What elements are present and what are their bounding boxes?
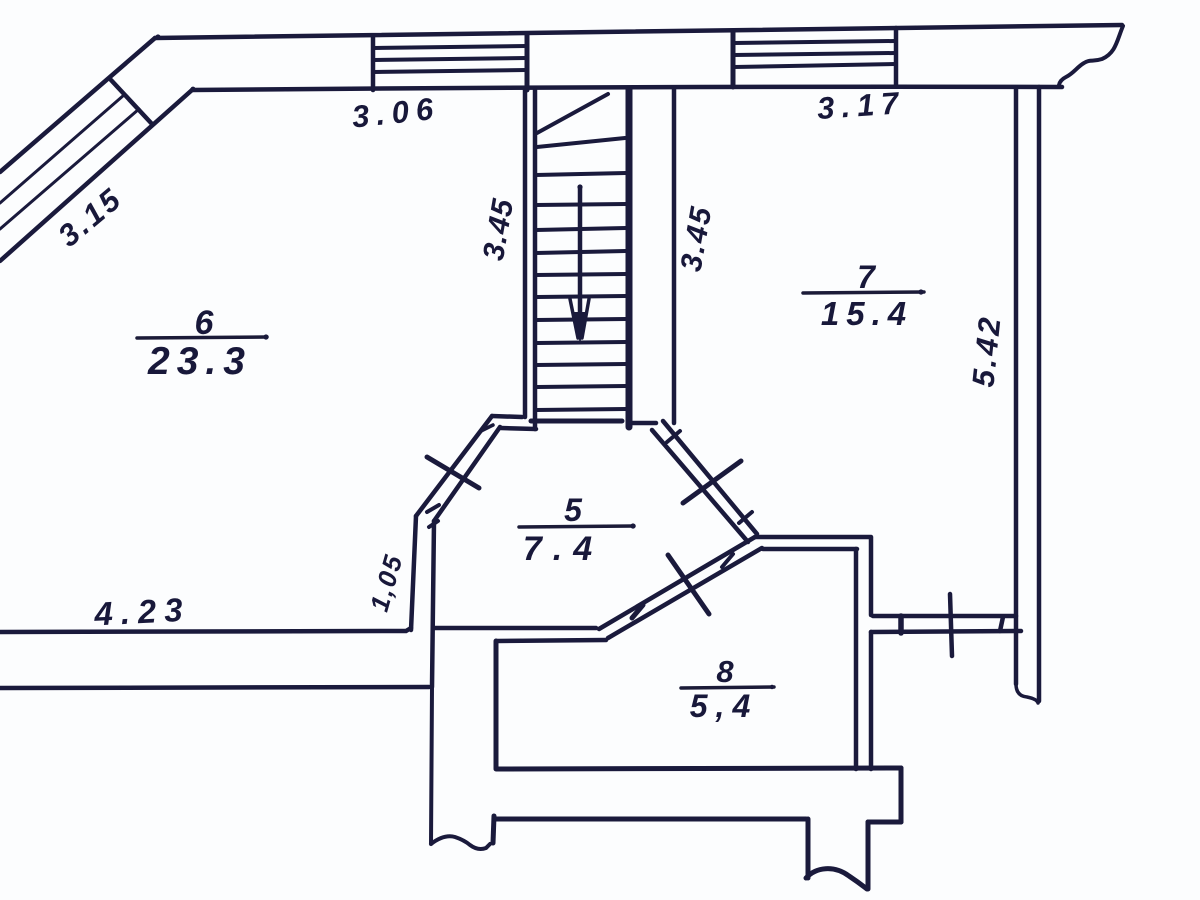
svg-text:7.4: 7.4 [523, 530, 603, 568]
svg-text:5,4: 5,4 [690, 688, 758, 724]
svg-text:15.4: 15.4 [821, 295, 913, 332]
svg-text:7: 7 [857, 259, 877, 295]
svg-text:8: 8 [716, 654, 734, 689]
svg-text:5: 5 [564, 492, 583, 528]
svg-text:23.3: 23.3 [147, 340, 252, 383]
svg-text:3.17: 3.17 [816, 85, 907, 126]
svg-text:4.23: 4.23 [92, 591, 191, 633]
